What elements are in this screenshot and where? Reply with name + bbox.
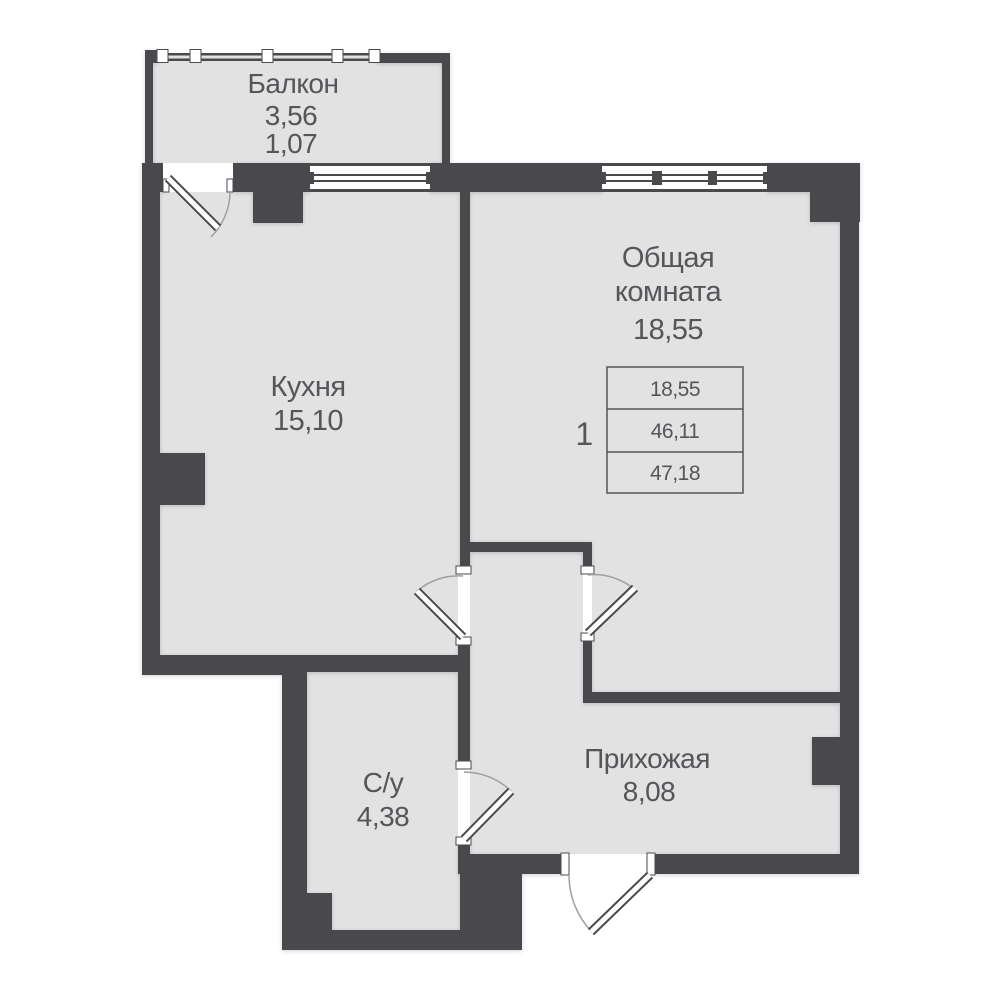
balcony-wall bbox=[145, 50, 157, 63]
door-jamb bbox=[456, 566, 471, 574]
window-cap bbox=[426, 172, 430, 184]
window-edge bbox=[602, 189, 767, 192]
wall-segment bbox=[307, 655, 470, 672]
door-jamb bbox=[561, 853, 569, 875]
window-glazing bbox=[606, 180, 763, 182]
wall-segment bbox=[470, 542, 592, 552]
wall-pillar bbox=[253, 192, 303, 223]
window-cap bbox=[602, 172, 606, 184]
balcony-area-reduced: 1,07 bbox=[265, 128, 318, 159]
window-mullion bbox=[708, 171, 717, 185]
wall-notch-block bbox=[307, 893, 332, 933]
floor-plan: 1 18,55 46,11 47,18 Балкон 3,56 1,07 Кух… bbox=[0, 0, 1000, 1000]
door-opening bbox=[458, 573, 470, 637]
window-post bbox=[262, 50, 273, 63]
hallway-area: 8,08 bbox=[623, 776, 676, 807]
bathroom-floor bbox=[300, 663, 462, 933]
window-edge bbox=[310, 189, 430, 192]
wall-pillar bbox=[160, 453, 205, 505]
window-glazing bbox=[606, 174, 763, 176]
table-cell-living-area: 18,55 bbox=[650, 378, 700, 401]
kitchen-area: 15,10 bbox=[273, 405, 343, 437]
window-mullion bbox=[652, 171, 662, 185]
wall-segment bbox=[142, 655, 307, 675]
bathroom-area: 4,38 bbox=[357, 801, 410, 832]
door-jamb bbox=[581, 566, 594, 574]
living-room-label-line2: комната bbox=[615, 276, 723, 308]
window-cap bbox=[310, 172, 314, 184]
balcony-wall bbox=[442, 55, 450, 163]
door-leaf bbox=[591, 875, 650, 932]
living-room-window bbox=[602, 163, 767, 192]
window-post bbox=[157, 50, 168, 63]
door-jamb bbox=[647, 853, 655, 875]
window-cap bbox=[763, 172, 767, 184]
wall-segment bbox=[840, 192, 859, 854]
door-opening bbox=[568, 854, 648, 874]
window-post bbox=[190, 50, 201, 63]
window-edge bbox=[602, 163, 767, 166]
window-post bbox=[369, 50, 380, 63]
door-jamb bbox=[456, 761, 471, 769]
wall-segment bbox=[430, 163, 602, 192]
window-edge bbox=[310, 163, 430, 166]
bathroom-label: С/у bbox=[363, 767, 404, 798]
balcony-area: 3,56 bbox=[265, 100, 318, 131]
wall-segment bbox=[142, 163, 160, 675]
wall-segment bbox=[233, 163, 310, 192]
door-jamb bbox=[227, 179, 233, 192]
window-post bbox=[332, 50, 343, 63]
door-swing-arc bbox=[569, 876, 591, 931]
door-opening bbox=[458, 768, 470, 837]
corridor-floor bbox=[465, 548, 590, 708]
kitchen-label: Кухня bbox=[270, 371, 345, 403]
wall-segment bbox=[592, 692, 842, 703]
table-cell-area: 46,11 bbox=[651, 420, 700, 443]
balcony-wall bbox=[377, 53, 450, 63]
living-room-area: 18,55 bbox=[633, 314, 703, 346]
rooms-count: 1 bbox=[575, 416, 592, 452]
balcony-label: Балкон bbox=[248, 68, 339, 99]
kitchen-window bbox=[310, 163, 430, 192]
wall-segment bbox=[583, 640, 592, 703]
wall-niche-block bbox=[812, 737, 842, 785]
window-glazing bbox=[314, 180, 426, 182]
wall-segment bbox=[654, 854, 859, 874]
door-opening bbox=[583, 573, 592, 633]
wall-segment bbox=[460, 854, 562, 874]
table-cell-total-area: 47,18 bbox=[650, 462, 700, 485]
window-band bbox=[602, 163, 767, 192]
living-room-label-line1: Общая bbox=[622, 242, 714, 274]
hallway-label: Прихожая bbox=[584, 743, 710, 774]
window-band bbox=[310, 163, 430, 192]
wall-segment bbox=[282, 655, 307, 950]
wall-segment bbox=[458, 642, 470, 763]
window-glazing bbox=[314, 174, 426, 176]
wall-segment bbox=[583, 552, 592, 567]
entrance-door bbox=[561, 853, 655, 932]
balcony-wall bbox=[145, 50, 153, 163]
wall-segment bbox=[460, 192, 470, 568]
wall-segment bbox=[458, 842, 470, 874]
